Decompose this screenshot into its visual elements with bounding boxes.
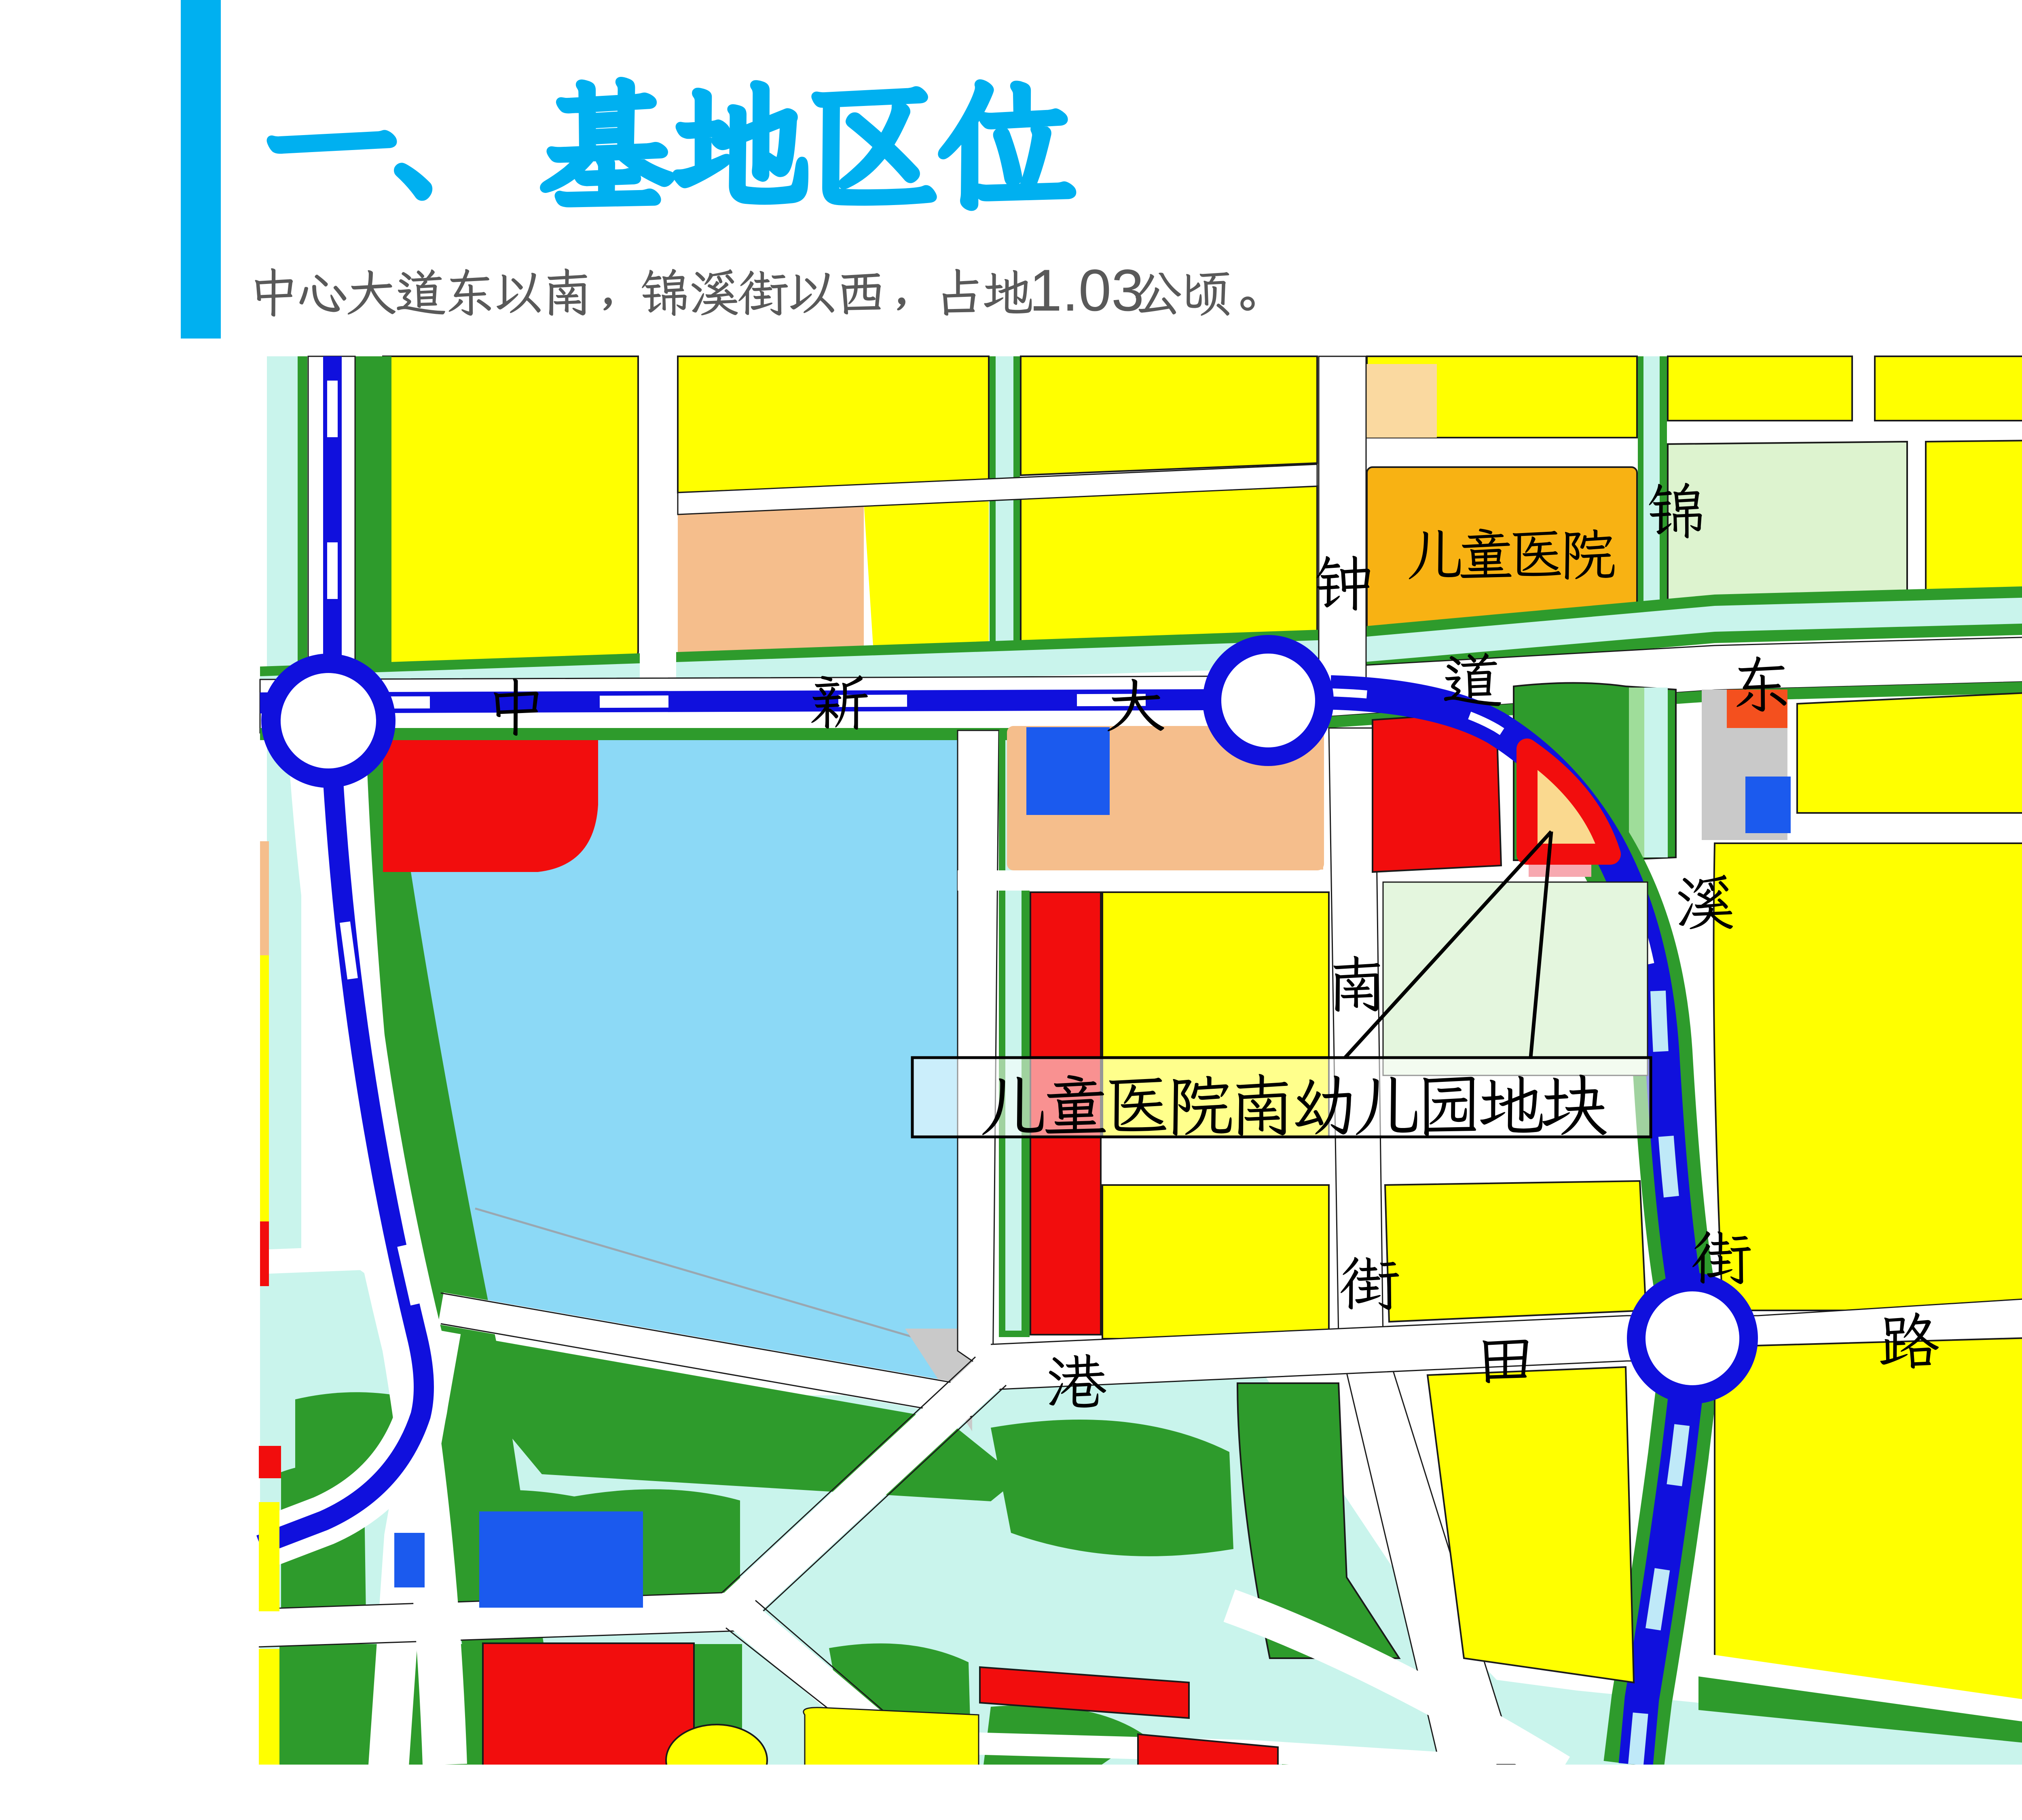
svg-text:1.03: 1.03 — [1029, 257, 1144, 323]
